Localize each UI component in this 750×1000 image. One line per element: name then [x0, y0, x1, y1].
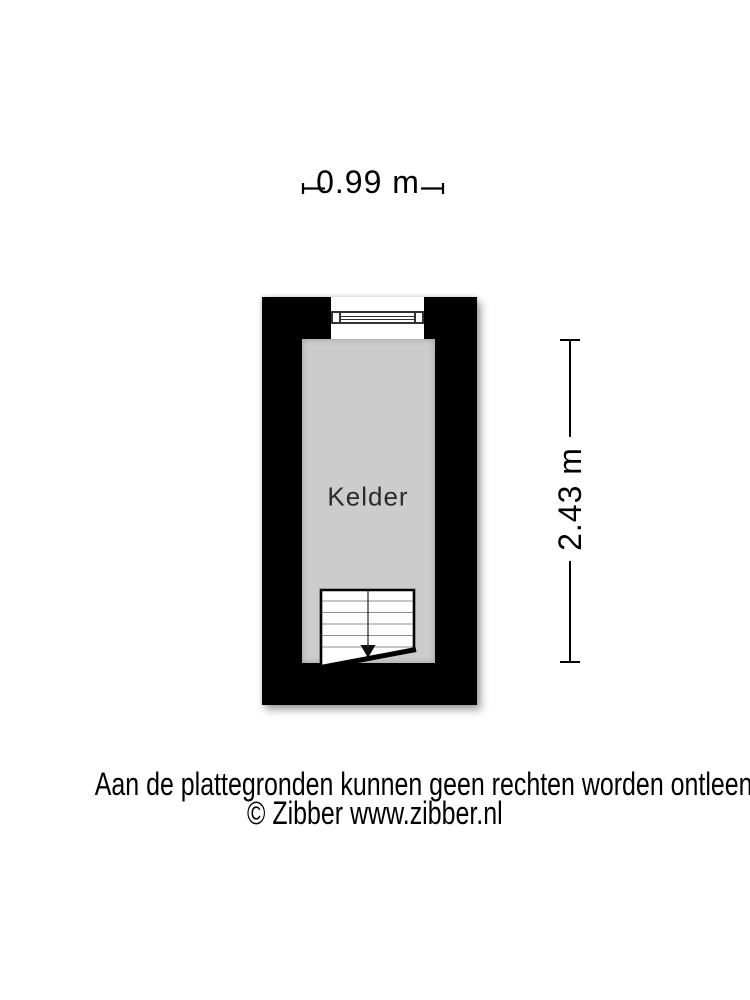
- floorplan-page: 0.99 m Kelder: [0, 0, 750, 1000]
- height-dimension-label: 2.43 m: [554, 437, 586, 561]
- window-pane: [339, 311, 416, 324]
- room-kelder-floor: Kelder: [302, 339, 435, 663]
- height-dimension-cap-top: [560, 339, 580, 341]
- footer-copyright: © Zibber www.zibber.nl: [247, 799, 503, 828]
- window-icon: [331, 311, 424, 324]
- width-dimension-tick-right-icon: [419, 182, 445, 195]
- stairs-icon: [319, 587, 417, 669]
- footer: Aan de plattegronden kunnen geen rechten…: [0, 770, 750, 828]
- width-dimension-tick-left-icon: [301, 182, 327, 195]
- floorplan-walls: Kelder: [262, 297, 477, 705]
- window-glazing-line: [339, 316, 416, 317]
- window-opening: [331, 297, 424, 339]
- height-dimension-cap-bottom: [560, 661, 580, 663]
- window-glazing-line: [339, 319, 416, 320]
- room-label: Kelder: [327, 482, 408, 513]
- window-frame-end-right: [414, 311, 424, 324]
- footer-copyright-line: © Zibber www.zibber.nl: [0, 799, 750, 828]
- window-frame-end-left: [331, 311, 341, 324]
- width-dimension-label: 0.99 m: [316, 166, 420, 198]
